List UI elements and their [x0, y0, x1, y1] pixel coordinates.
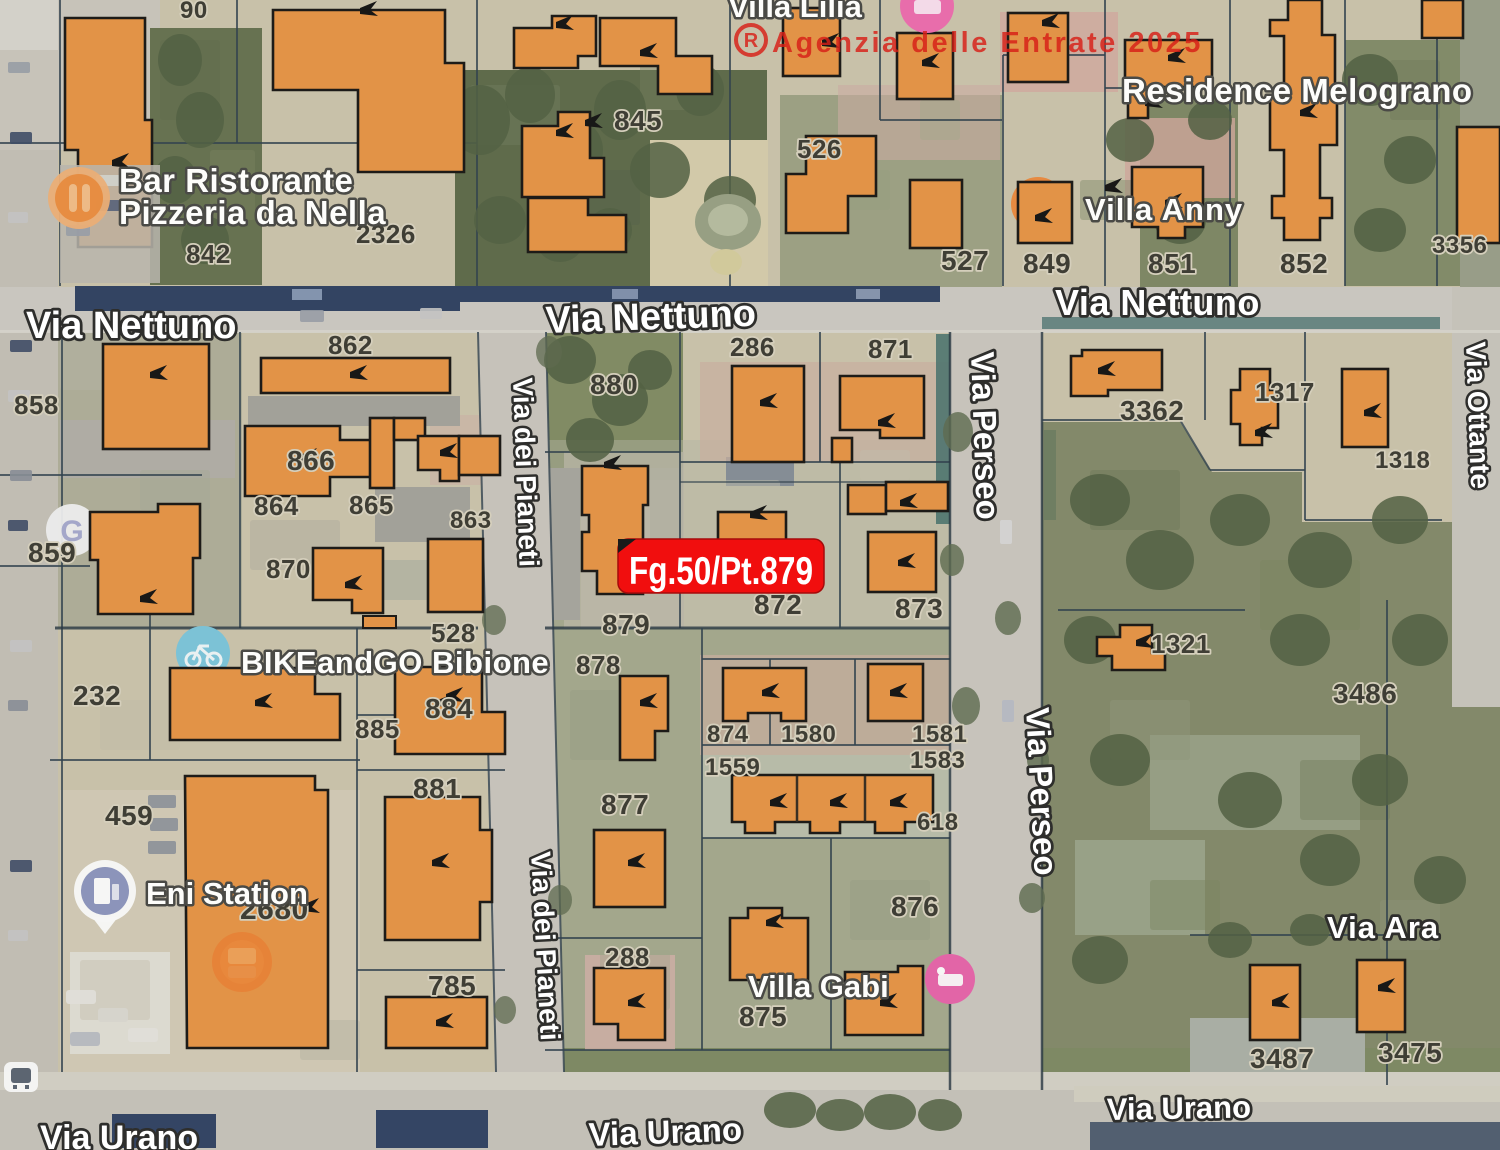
- svg-text:885: 885: [355, 714, 400, 744]
- svg-text:618: 618: [917, 809, 959, 836]
- svg-text:BIKEandGO Bibione: BIKEandGO Bibione: [241, 645, 549, 680]
- svg-text:3362: 3362: [1120, 395, 1184, 426]
- svg-text:858: 858: [14, 390, 59, 420]
- svg-text:881: 881: [413, 773, 461, 804]
- svg-text:Eni Station: Eni Station: [146, 876, 308, 911]
- svg-text:Villa Gabi: Villa Gabi: [748, 969, 889, 1004]
- svg-text:527: 527: [941, 245, 989, 276]
- svg-text:866: 866: [287, 445, 335, 476]
- svg-text:3486: 3486: [1333, 678, 1397, 709]
- svg-text:Via Ottante: Via Ottante: [1460, 341, 1496, 489]
- svg-text:459: 459: [105, 800, 153, 831]
- svg-text:851: 851: [1148, 248, 1196, 279]
- svg-text:863: 863: [450, 507, 492, 534]
- svg-text:876: 876: [891, 891, 939, 922]
- svg-text:Via dei Pianeti: Via dei Pianeti: [507, 377, 545, 567]
- svg-text:Via Perseo: Via Perseo: [964, 351, 1007, 520]
- svg-text:Via Ara: Via Ara: [1327, 910, 1439, 945]
- svg-text:Villa Anny: Villa Anny: [1085, 192, 1243, 227]
- svg-text:1559: 1559: [705, 754, 760, 781]
- svg-text:1580: 1580: [781, 721, 836, 748]
- svg-text:Via Urano: Via Urano: [40, 1119, 198, 1150]
- svg-text:871: 871: [868, 334, 913, 364]
- svg-text:R: R: [744, 30, 759, 52]
- svg-text:1583: 1583: [910, 747, 965, 774]
- svg-text:870: 870: [266, 554, 311, 584]
- svg-text:Via Nettuno: Via Nettuno: [1055, 282, 1260, 323]
- svg-text:Via Urano: Via Urano: [1107, 1089, 1252, 1127]
- svg-text:879: 879: [602, 609, 650, 640]
- svg-text:785: 785: [428, 970, 476, 1001]
- svg-text:880: 880: [590, 369, 638, 400]
- svg-text:1321: 1321: [1151, 629, 1211, 659]
- svg-text:845: 845: [614, 105, 662, 136]
- svg-text:1317: 1317: [1255, 377, 1315, 407]
- svg-text:875: 875: [739, 1001, 787, 1032]
- svg-text:862: 862: [328, 330, 373, 360]
- svg-text:Villa Lilia: Villa Lilia: [728, 0, 863, 24]
- svg-text:Via Urano: Via Urano: [588, 1111, 743, 1150]
- svg-text:Via Nettuno: Via Nettuno: [26, 305, 236, 347]
- svg-text:1318: 1318: [1375, 447, 1430, 474]
- svg-text:232: 232: [73, 680, 121, 711]
- svg-text:526: 526: [797, 134, 842, 164]
- svg-text:90: 90: [180, 0, 208, 24]
- svg-text:288: 288: [605, 942, 650, 972]
- svg-text:Fg.50/Pt.879: Fg.50/Pt.879: [629, 550, 813, 593]
- svg-text:1581: 1581: [912, 721, 967, 748]
- svg-text:859: 859: [28, 537, 76, 568]
- svg-text:884: 884: [425, 693, 473, 724]
- svg-text:865: 865: [349, 490, 394, 520]
- svg-text:Pizzeria da Nella: Pizzeria da Nella: [119, 194, 386, 231]
- svg-text:3487: 3487: [1250, 1043, 1314, 1074]
- svg-text:286: 286: [730, 332, 775, 362]
- svg-text:Residence Melograno: Residence Melograno: [1122, 72, 1473, 109]
- svg-text:Agenzia delle Entrate 2025: Agenzia delle Entrate 2025: [772, 27, 1203, 59]
- svg-text:842: 842: [186, 239, 231, 269]
- svg-text:873: 873: [895, 593, 943, 624]
- svg-text:3356: 3356: [1432, 232, 1487, 259]
- svg-text:528: 528: [431, 618, 476, 648]
- svg-text:877: 877: [601, 789, 649, 820]
- svg-text:Via Nettuno: Via Nettuno: [545, 293, 757, 342]
- svg-text:864: 864: [254, 491, 299, 521]
- svg-text:874: 874: [707, 721, 749, 748]
- svg-text:3475: 3475: [1378, 1037, 1442, 1068]
- svg-text:849: 849: [1023, 248, 1071, 279]
- svg-text:852: 852: [1280, 248, 1328, 279]
- svg-text:878: 878: [576, 650, 621, 680]
